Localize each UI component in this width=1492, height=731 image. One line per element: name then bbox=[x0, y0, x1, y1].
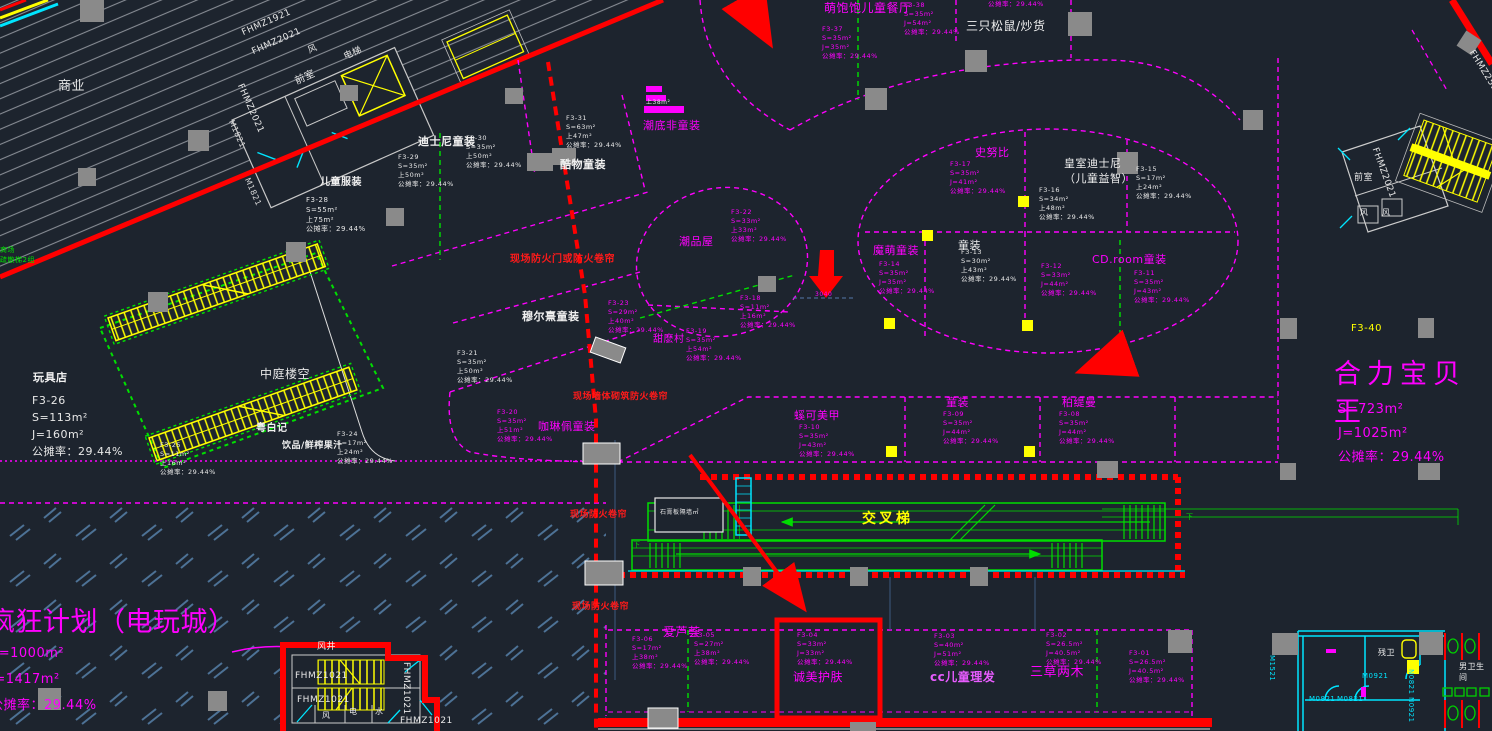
yellow-marker-squares bbox=[884, 196, 1035, 457]
red-arrow-top bbox=[752, 12, 768, 40]
red-annotation-arrows bbox=[690, 12, 1112, 606]
highlight-bars bbox=[644, 86, 684, 113]
cad-floorplan-canvas: 商业FHMZ1921FHMZ2021FHMZ2021M1821M1821前室风电… bbox=[0, 0, 1492, 731]
red-arrow-center bbox=[809, 250, 843, 298]
cross-escalator bbox=[632, 503, 1458, 570]
stair-core-bottomleft bbox=[283, 640, 437, 731]
red-arrow-left bbox=[1084, 360, 1112, 370]
highlighted-shop-box bbox=[777, 620, 880, 718]
toilet-block bbox=[1298, 631, 1489, 731]
cad-linework bbox=[0, 0, 1492, 731]
bottom-fire-bar bbox=[598, 718, 1212, 731]
atrium-escalators bbox=[100, 240, 395, 468]
